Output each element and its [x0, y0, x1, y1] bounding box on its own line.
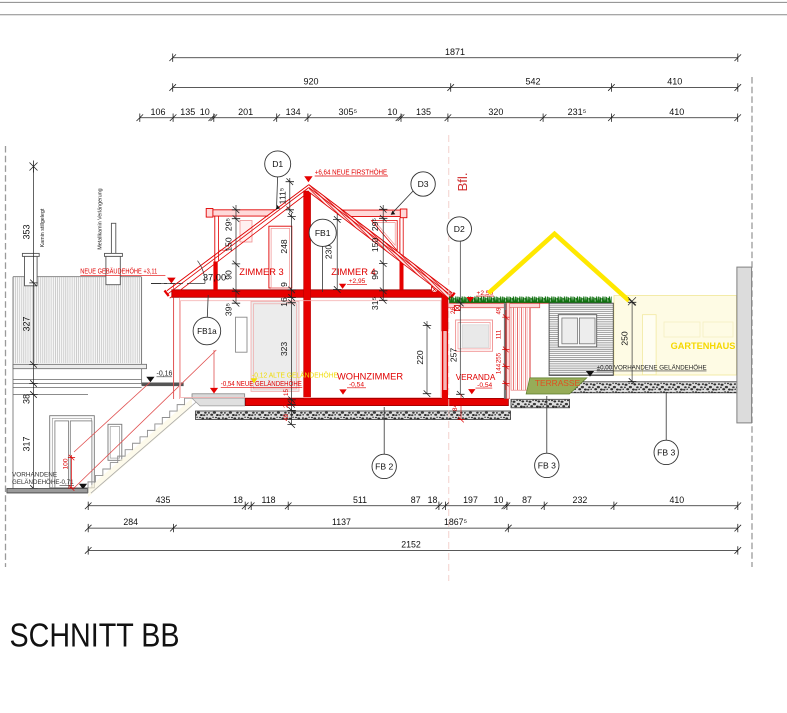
svg-text:10: 10 [387, 107, 397, 117]
svg-text:FB 3: FB 3 [538, 461, 556, 471]
svg-text:9: 9 [279, 282, 289, 287]
svg-text:29⁵: 29⁵ [370, 218, 380, 232]
svg-text:232: 232 [573, 495, 588, 505]
svg-text:15: 15 [283, 389, 290, 396]
svg-text:410: 410 [667, 77, 682, 87]
svg-text:VERANDA: VERANDA [456, 373, 496, 382]
svg-text:353: 353 [21, 224, 31, 239]
svg-text:D2: D2 [454, 224, 465, 234]
svg-text:37,00: 37,00 [203, 273, 226, 283]
svg-text:144: 144 [496, 363, 503, 374]
svg-text:20: 20 [283, 401, 290, 408]
svg-text:-0,12 ALTE GELÄNDEHÖHE: -0,12 ALTE GELÄNDEHÖHE [252, 372, 338, 380]
svg-text:WOHNZIMMER: WOHNZIMMER [337, 372, 403, 382]
svg-text:SCHNITT BB: SCHNITT BB [10, 618, 180, 655]
svg-text:111⁵: 111⁵ [278, 187, 288, 204]
svg-text:87: 87 [522, 495, 532, 505]
svg-text:197: 197 [463, 495, 478, 505]
svg-text:1137: 1137 [332, 517, 351, 527]
svg-text:220: 220 [415, 350, 425, 365]
svg-text:31⁵: 31⁵ [370, 297, 380, 311]
svg-text:317: 317 [21, 436, 31, 451]
svg-text:920: 920 [303, 77, 318, 87]
svg-text:10: 10 [200, 107, 210, 117]
svg-text:FB1a: FB1a [197, 327, 217, 336]
svg-text:+6,64 NEUE FIRSTHÖHE: +6,64 NEUE FIRSTHÖHE [315, 168, 388, 176]
svg-text:201: 201 [238, 107, 253, 117]
svg-text:FB1: FB1 [315, 228, 331, 238]
svg-text:118: 118 [261, 495, 275, 505]
svg-text:Metallkamin Verlängerung: Metallkamin Verlängerung [98, 188, 104, 249]
svg-text:GARTENHAUS: GARTENHAUS [671, 341, 736, 351]
svg-text:29⁵: 29⁵ [224, 218, 234, 232]
svg-text:511: 511 [353, 495, 367, 505]
svg-text:135: 135 [416, 107, 431, 117]
svg-text:410: 410 [669, 495, 684, 505]
svg-text:231⁵: 231⁵ [568, 107, 587, 117]
svg-text:257: 257 [448, 348, 458, 363]
svg-text:100: 100 [63, 458, 70, 469]
svg-text:150: 150 [370, 238, 380, 253]
svg-text:2152: 2152 [401, 539, 421, 549]
svg-text:D3: D3 [418, 179, 429, 189]
svg-text:134: 134 [286, 107, 301, 117]
svg-text:-0,54: -0,54 [477, 382, 492, 389]
svg-text:135: 135 [180, 107, 195, 117]
svg-text:VORHANDENE: VORHANDENE [12, 472, 57, 479]
svg-text:-0,54: -0,54 [349, 382, 364, 389]
svg-text:FB 3: FB 3 [657, 448, 675, 458]
svg-text:ZIMMER 3: ZIMMER 3 [239, 267, 283, 277]
svg-text:FB 2: FB 2 [375, 462, 393, 472]
svg-text:87: 87 [411, 495, 421, 505]
svg-text:111: 111 [496, 329, 503, 339]
svg-text:1867⁵: 1867⁵ [444, 517, 468, 527]
svg-text:150: 150 [224, 237, 234, 252]
svg-text:39⁵: 39⁵ [224, 303, 234, 317]
svg-text:320: 320 [488, 107, 503, 117]
svg-text:Kamin stillgelegt: Kamin stillgelegt [40, 208, 46, 247]
svg-text:38: 38 [21, 394, 31, 404]
svg-text:10: 10 [494, 495, 504, 505]
svg-text:1871: 1871 [445, 47, 465, 57]
svg-text:26: 26 [450, 307, 457, 314]
svg-text:18: 18 [233, 495, 243, 505]
svg-text:410: 410 [669, 107, 684, 117]
svg-text:327: 327 [21, 316, 31, 331]
svg-text:±0,00 VORHANDENE GELÄNDEHÖHE: ±0,00 VORHANDENE GELÄNDEHÖHE [597, 363, 708, 371]
svg-text:84: 84 [452, 404, 459, 411]
svg-text:250: 250 [620, 331, 630, 346]
svg-text:+2,95: +2,95 [349, 278, 366, 285]
svg-text:Bfl.: Bfl. [455, 172, 470, 191]
svg-text:542: 542 [525, 77, 540, 87]
svg-text:248: 248 [279, 239, 289, 254]
svg-text:49: 49 [496, 307, 503, 314]
svg-text:D1: D1 [272, 159, 283, 169]
svg-text:ZIMMER 4: ZIMMER 4 [331, 267, 375, 277]
svg-text:255: 255 [496, 352, 503, 363]
svg-text:90: 90 [370, 270, 380, 280]
svg-text:NEUE GEBÄUDEHÖHE +3,11: NEUE GEBÄUDEHÖHE +3,11 [80, 267, 157, 275]
svg-text:-0,16: -0,16 [157, 370, 173, 377]
svg-text:49: 49 [283, 414, 290, 421]
svg-text:TERRASSE: TERRASSE [535, 378, 581, 388]
svg-text:-0,71: -0,71 [60, 479, 75, 486]
svg-text:230: 230 [324, 245, 334, 260]
svg-text:323: 323 [279, 342, 289, 357]
svg-text:GELÄNDEHÖHE: GELÄNDEHÖHE [12, 479, 59, 486]
svg-text:106: 106 [150, 107, 165, 117]
svg-text:284: 284 [123, 517, 138, 527]
svg-text:-0,54 NEUE GELÄNDEHÖHE: -0,54 NEUE GELÄNDEHÖHE [221, 380, 302, 388]
svg-text:16: 16 [279, 297, 289, 307]
svg-text:435: 435 [156, 495, 171, 505]
svg-text:305⁵: 305⁵ [339, 107, 358, 117]
svg-text:18: 18 [428, 495, 438, 505]
svg-text:90: 90 [224, 270, 234, 280]
